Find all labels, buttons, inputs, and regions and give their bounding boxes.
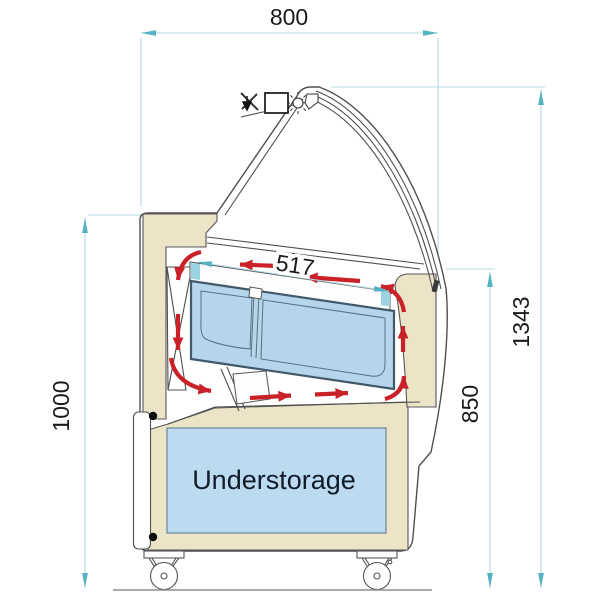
dimension-label-front-height: 850 bbox=[457, 385, 483, 423]
caster-plate bbox=[144, 551, 184, 558]
dimension-label-width: 800 bbox=[270, 4, 308, 30]
lamp-ballast-box bbox=[265, 93, 288, 113]
airflow-arrow-bottom-left bbox=[250, 396, 291, 399]
caster-hub bbox=[374, 573, 380, 579]
rim-end-cap-right bbox=[381, 289, 390, 307]
caster-left bbox=[144, 551, 184, 590]
door-hinge-bottom bbox=[149, 533, 157, 541]
caster-bolt bbox=[388, 560, 392, 564]
airflow-arrow-bottom-right bbox=[315, 393, 348, 395]
diagram-canvas: 800 1343 1000 850 Understorage bbox=[0, 0, 600, 600]
airflow-arrow-top-left bbox=[240, 265, 278, 267]
caster-hub bbox=[161, 573, 167, 579]
rim-end-cap-left bbox=[191, 263, 200, 280]
dimension-label-overall-height: 1343 bbox=[508, 296, 534, 347]
understorage-label: Understorage bbox=[192, 465, 356, 495]
rear-door-panel bbox=[134, 412, 151, 549]
caster-right bbox=[357, 551, 397, 590]
dimension-label-body-height: 1000 bbox=[48, 380, 74, 431]
display-counter-cross-section: 800 1343 1000 850 Understorage bbox=[0, 0, 600, 600]
casters bbox=[144, 551, 397, 590]
pan-divider-handle bbox=[249, 287, 262, 299]
dimension-front-height-850: 850 bbox=[446, 269, 495, 588]
dimension-body-height-1000: 1000 bbox=[48, 215, 140, 588]
caster-plate bbox=[357, 551, 397, 558]
understorage-compartment: Understorage bbox=[167, 428, 386, 533]
light-bulb-icon bbox=[293, 98, 303, 108]
door-hinge-top bbox=[149, 412, 157, 420]
